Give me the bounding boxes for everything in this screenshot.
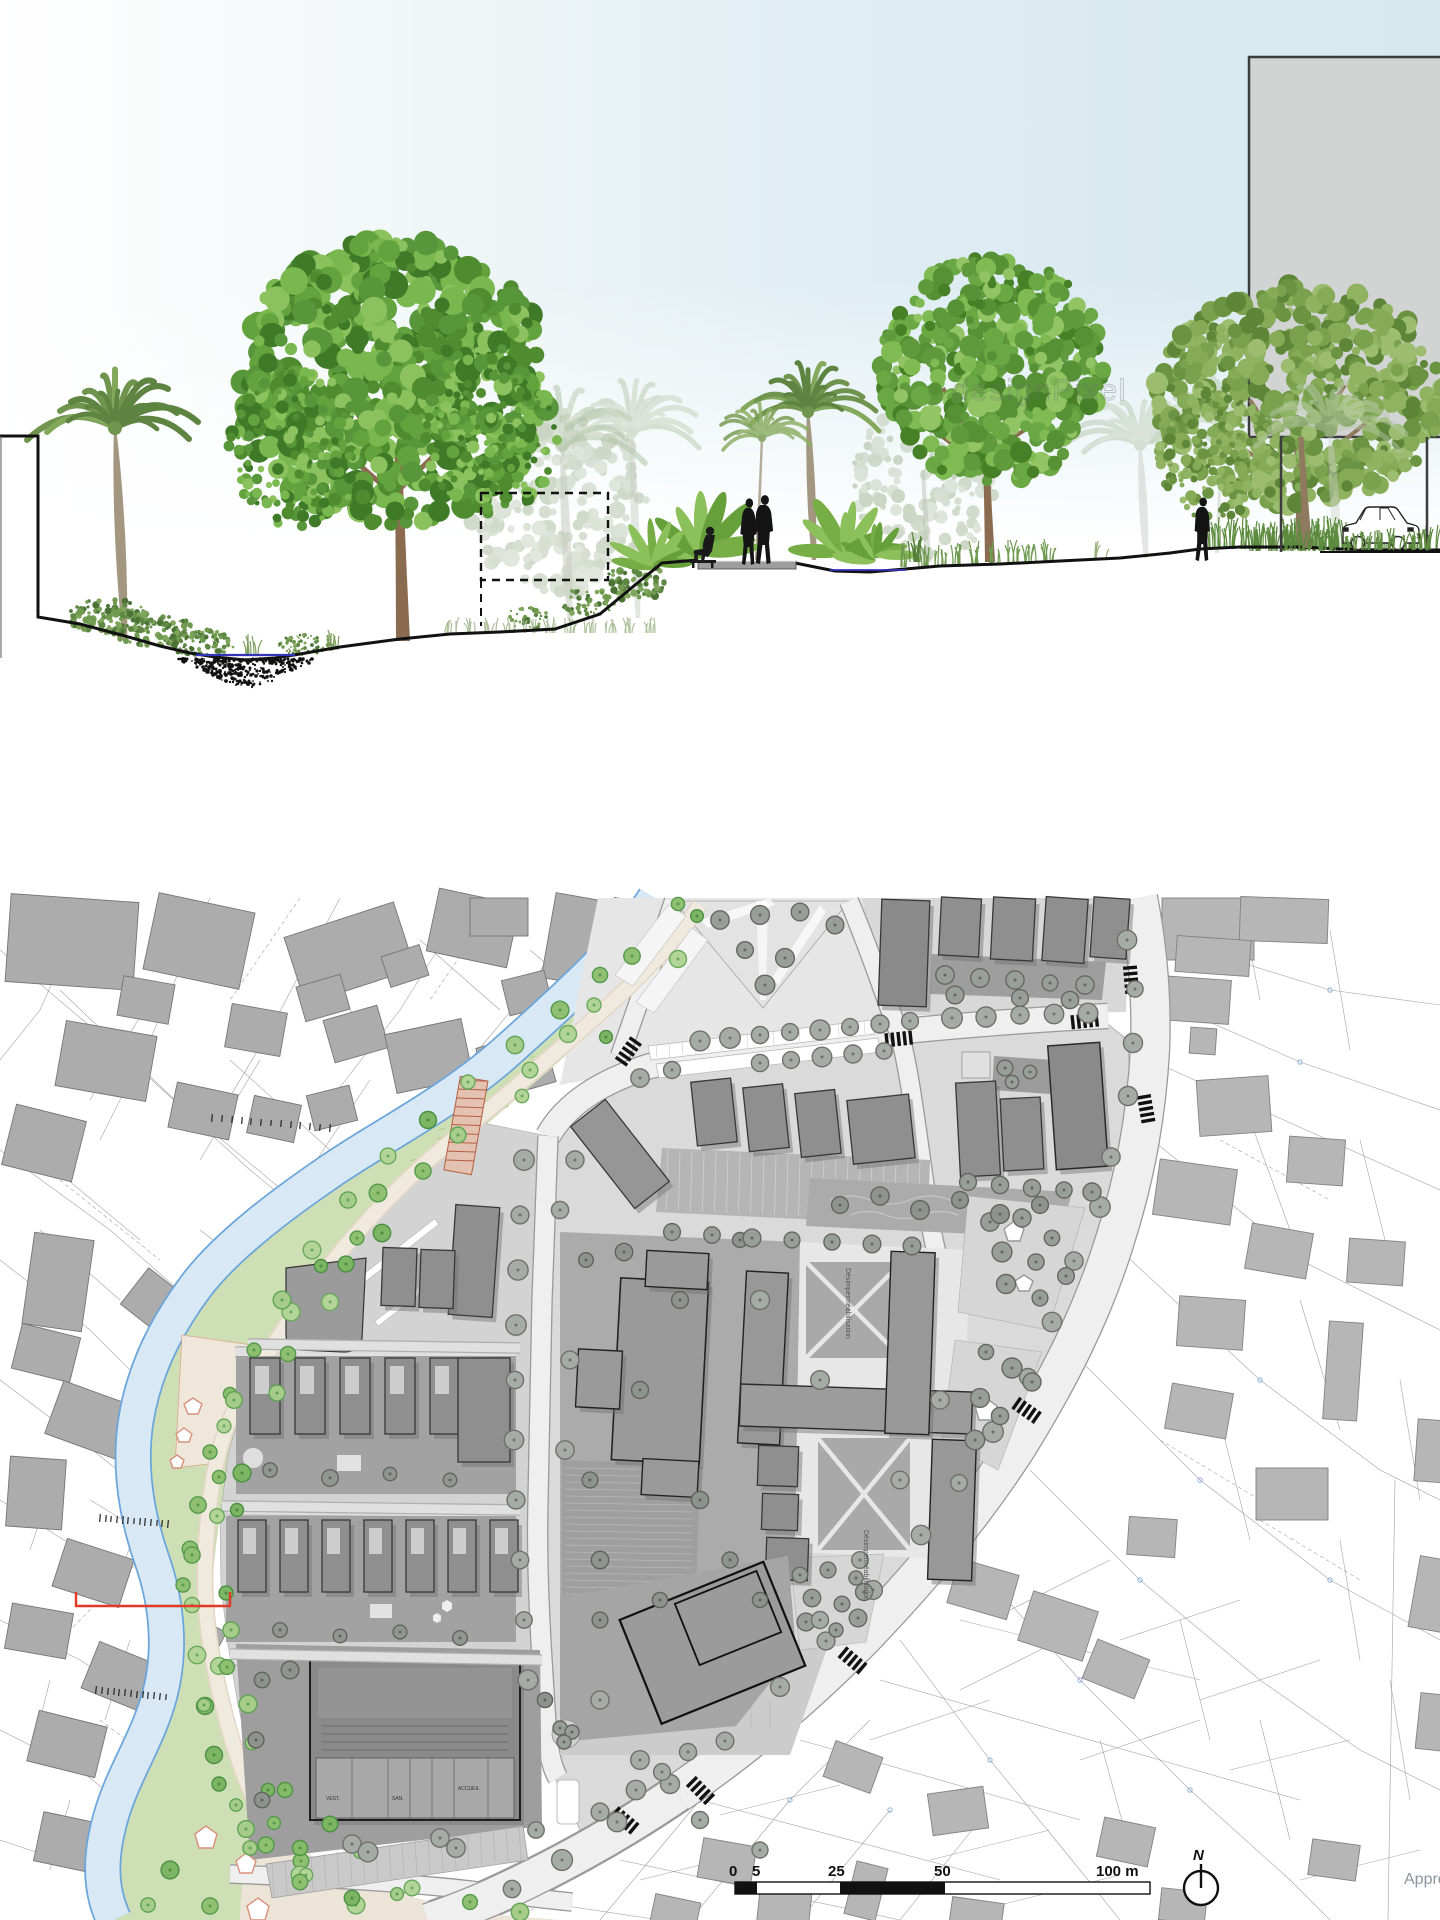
svg-text:100 m: 100 m [1096, 1863, 1139, 1880]
svg-text:VEST.: VEST. [326, 1796, 340, 1802]
svg-text:5: 5 [752, 1863, 760, 1880]
svg-text:designPixel: designPixel [952, 374, 1127, 407]
svg-text:Appro: Appro [1404, 1871, 1440, 1888]
svg-text:50: 50 [934, 1863, 951, 1880]
svg-text:Désimperméabilisation: Désimperméabilisation [862, 1530, 869, 1601]
svg-text:N: N [1193, 1847, 1205, 1864]
svg-text:25: 25 [828, 1863, 845, 1880]
svg-text:ACCUEIL: ACCUEIL [458, 1786, 480, 1792]
svg-text:0: 0 [729, 1863, 737, 1880]
svg-text:Désimperméabilisation: Désimperméabilisation [844, 1268, 851, 1339]
svg-text:SAN.: SAN. [392, 1796, 404, 1802]
